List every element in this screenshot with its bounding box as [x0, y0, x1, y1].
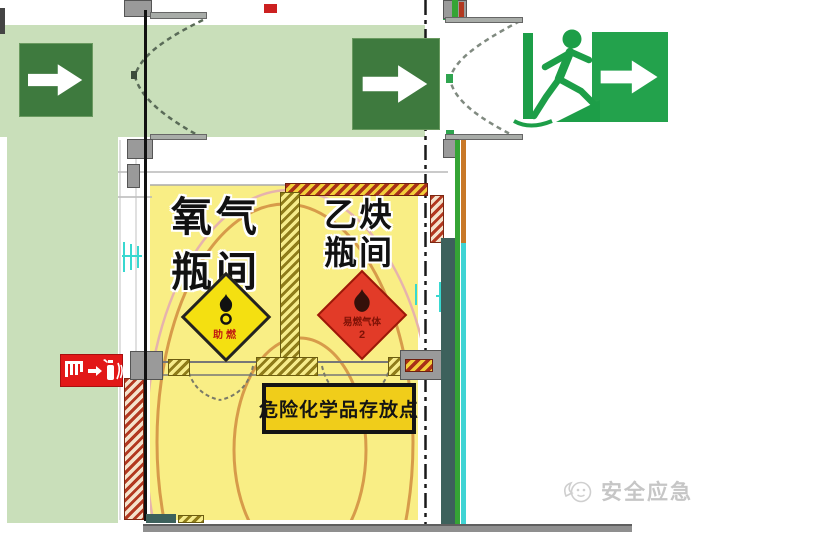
room-label-acetylene: 乙炔 瓶间: [306, 196, 412, 272]
flammable-diamond-content: 易燃气体 2: [332, 285, 392, 345]
room-label-acetylene-line1: 乙炔: [306, 196, 412, 234]
flammable-gas-label: 易燃气体: [343, 314, 381, 328]
room-label-acetylene-line2: 瓶间: [306, 234, 412, 272]
storage-point-text: 危险化学品存放点: [259, 395, 419, 422]
fire-extinguisher-icon: [61, 355, 124, 388]
evacuation-floor-plan: 氧气 瓶间 乙炔 瓶间 助燃 易燃气体 2 危险化学品存放点: [0, 0, 840, 533]
storage-point-label: 危险化学品存放点: [262, 383, 416, 434]
running-man-exit-icon: [0, 0, 840, 533]
flammable-gas-class-number: 2: [359, 329, 365, 341]
room-label-oxygen-line1: 氧气: [152, 190, 280, 245]
red-marker: [264, 4, 277, 13]
watermark: 安全应急: [560, 476, 693, 506]
edge-tick: [0, 8, 5, 34]
flammable-gas-flame-icon: [349, 289, 375, 313]
oxidizer-diamond-content: 助燃: [197, 288, 255, 346]
fire-equipment-sign: [60, 354, 123, 387]
watermark-logo-icon: [560, 476, 594, 506]
oxidizer-label: 助燃: [213, 326, 239, 341]
oxidizer-flame-icon: [214, 294, 238, 325]
watermark-text: 安全应急: [601, 476, 693, 506]
